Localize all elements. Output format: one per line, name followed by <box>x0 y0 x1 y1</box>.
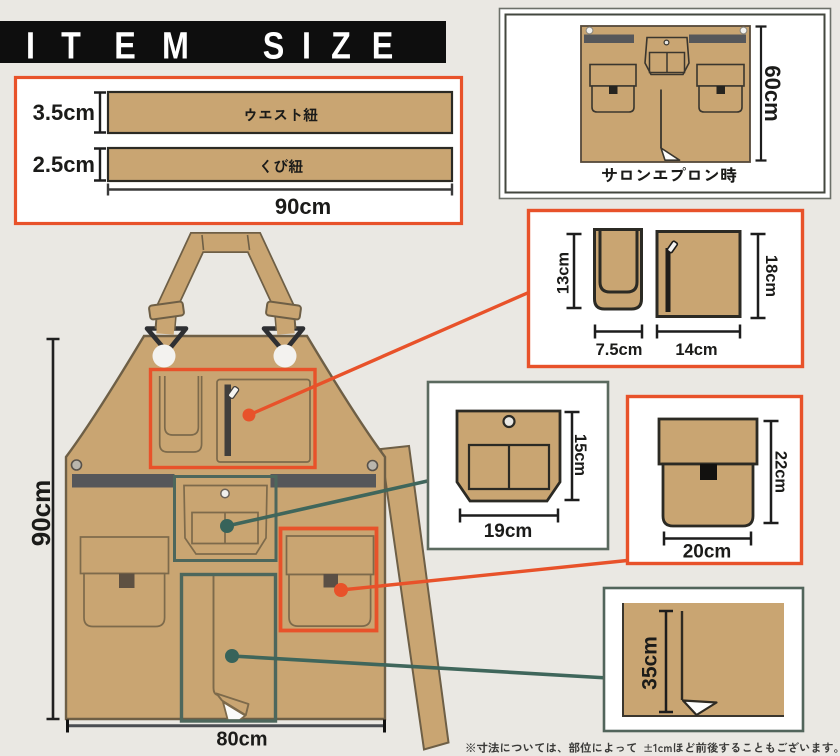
svg-text:18cm: 18cm <box>762 255 780 297</box>
svg-text:E: E <box>372 25 394 67</box>
svg-text:15cm: 15cm <box>571 434 589 476</box>
svg-text:22cm: 22cm <box>772 451 790 493</box>
svg-text:T: T <box>61 25 81 67</box>
svg-text:2.5cm: 2.5cm <box>33 152 95 177</box>
svg-text:7.5cm: 7.5cm <box>596 341 643 359</box>
svg-text:S: S <box>263 25 285 67</box>
svg-text:90cm: 90cm <box>275 194 331 219</box>
svg-text:80cm: 80cm <box>216 729 267 751</box>
svg-text:3.5cm: 3.5cm <box>33 100 95 125</box>
svg-text:35cm: 35cm <box>639 636 662 690</box>
svg-text:14cm: 14cm <box>675 341 717 359</box>
svg-text:13cm: 13cm <box>555 252 573 294</box>
svg-text:60cm: 60cm <box>760 65 785 121</box>
svg-text:90cm: 90cm <box>26 480 56 547</box>
svg-text:I: I <box>302 25 311 67</box>
svg-text:E: E <box>114 25 136 67</box>
svg-text:I: I <box>26 25 35 67</box>
svg-text:M: M <box>162 25 189 67</box>
svg-text:20cm: 20cm <box>683 542 732 563</box>
svg-text:Z: Z <box>331 25 351 67</box>
svg-text:19cm: 19cm <box>484 521 533 542</box>
